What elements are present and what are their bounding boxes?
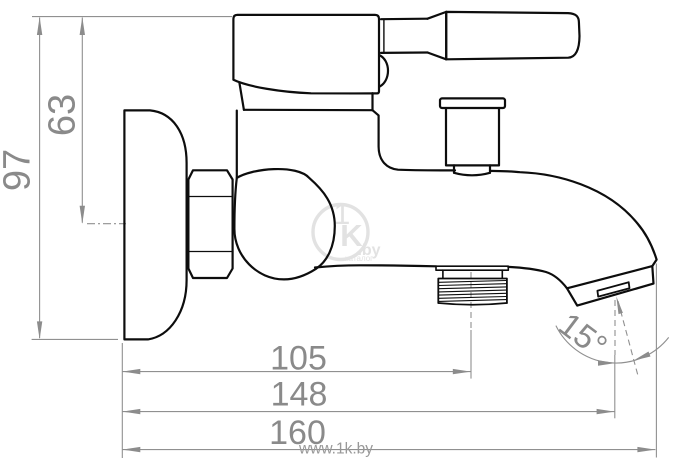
svg-text:97: 97 bbox=[0, 149, 39, 191]
svg-text:63: 63 bbox=[42, 94, 84, 136]
svg-text:www.1k.by: www.1k.by bbox=[298, 440, 373, 457]
svg-text:105: 105 bbox=[270, 339, 327, 377]
svg-text:каталог: каталог bbox=[345, 254, 373, 263]
svg-text:148: 148 bbox=[271, 376, 328, 414]
